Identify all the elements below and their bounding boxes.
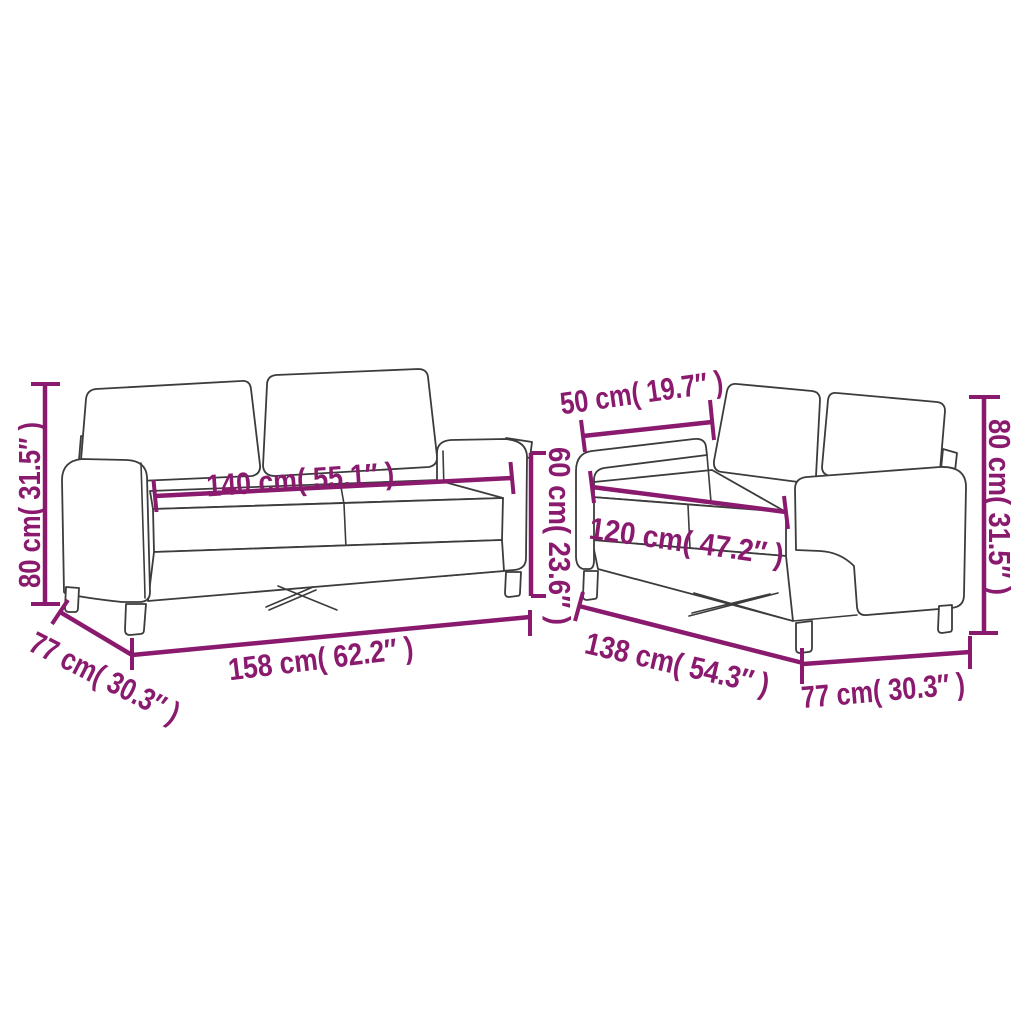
right-sofa-far-arm [795, 467, 966, 615]
left-sofa-front-left-leg [125, 604, 146, 635]
dimension-left-height: 80 cm( 31.5″ ) [12, 384, 60, 604]
dimension-label-right-seat-depth: 50 cm( 19.7″ ) [558, 364, 725, 421]
dimension-left-back-height: 60 cm( 23.6″ ) [531, 447, 577, 625]
dimension-label-right-depth: 77 cm( 30.3″ ) [800, 666, 966, 715]
right-sofa-back-cushion-left [714, 384, 820, 483]
right-sofa-front-left-leg [583, 571, 598, 600]
left-sofa-drawing [62, 369, 532, 635]
sofa-dimension-diagram: 80 cm( 31.5″ ) 140 cm( 55.1″ ) 60 cm( 23… [0, 0, 1024, 1024]
dimension-label-left-back-height: 60 cm( 23.6″ ) [542, 447, 577, 625]
dimension-left-depth: 77 cm( 30.3″ ) [24, 600, 186, 730]
dimension-left-width: 158 cm( 62.2″ ) [132, 610, 530, 687]
right-sofa-back-right-leg [938, 605, 952, 633]
right-sofa-back-cushion-right [822, 393, 945, 478]
dimension-label-right-width: 138 cm( 54.3″ ) [582, 626, 773, 702]
right-sofa-base-right-edge [793, 615, 857, 621]
dimension-label-right-height: 80 cm( 31.5″ ) [982, 419, 1017, 595]
dimension-right-depth: 77 cm( 30.3″ ) [800, 636, 970, 715]
dimension-label-left-height: 80 cm( 31.5″ ) [12, 422, 47, 588]
left-sofa-left-arm [62, 459, 150, 602]
dimension-right-height: 80 cm( 31.5″ ) [969, 397, 1017, 633]
left-sofa-front-right-leg [505, 572, 521, 597]
